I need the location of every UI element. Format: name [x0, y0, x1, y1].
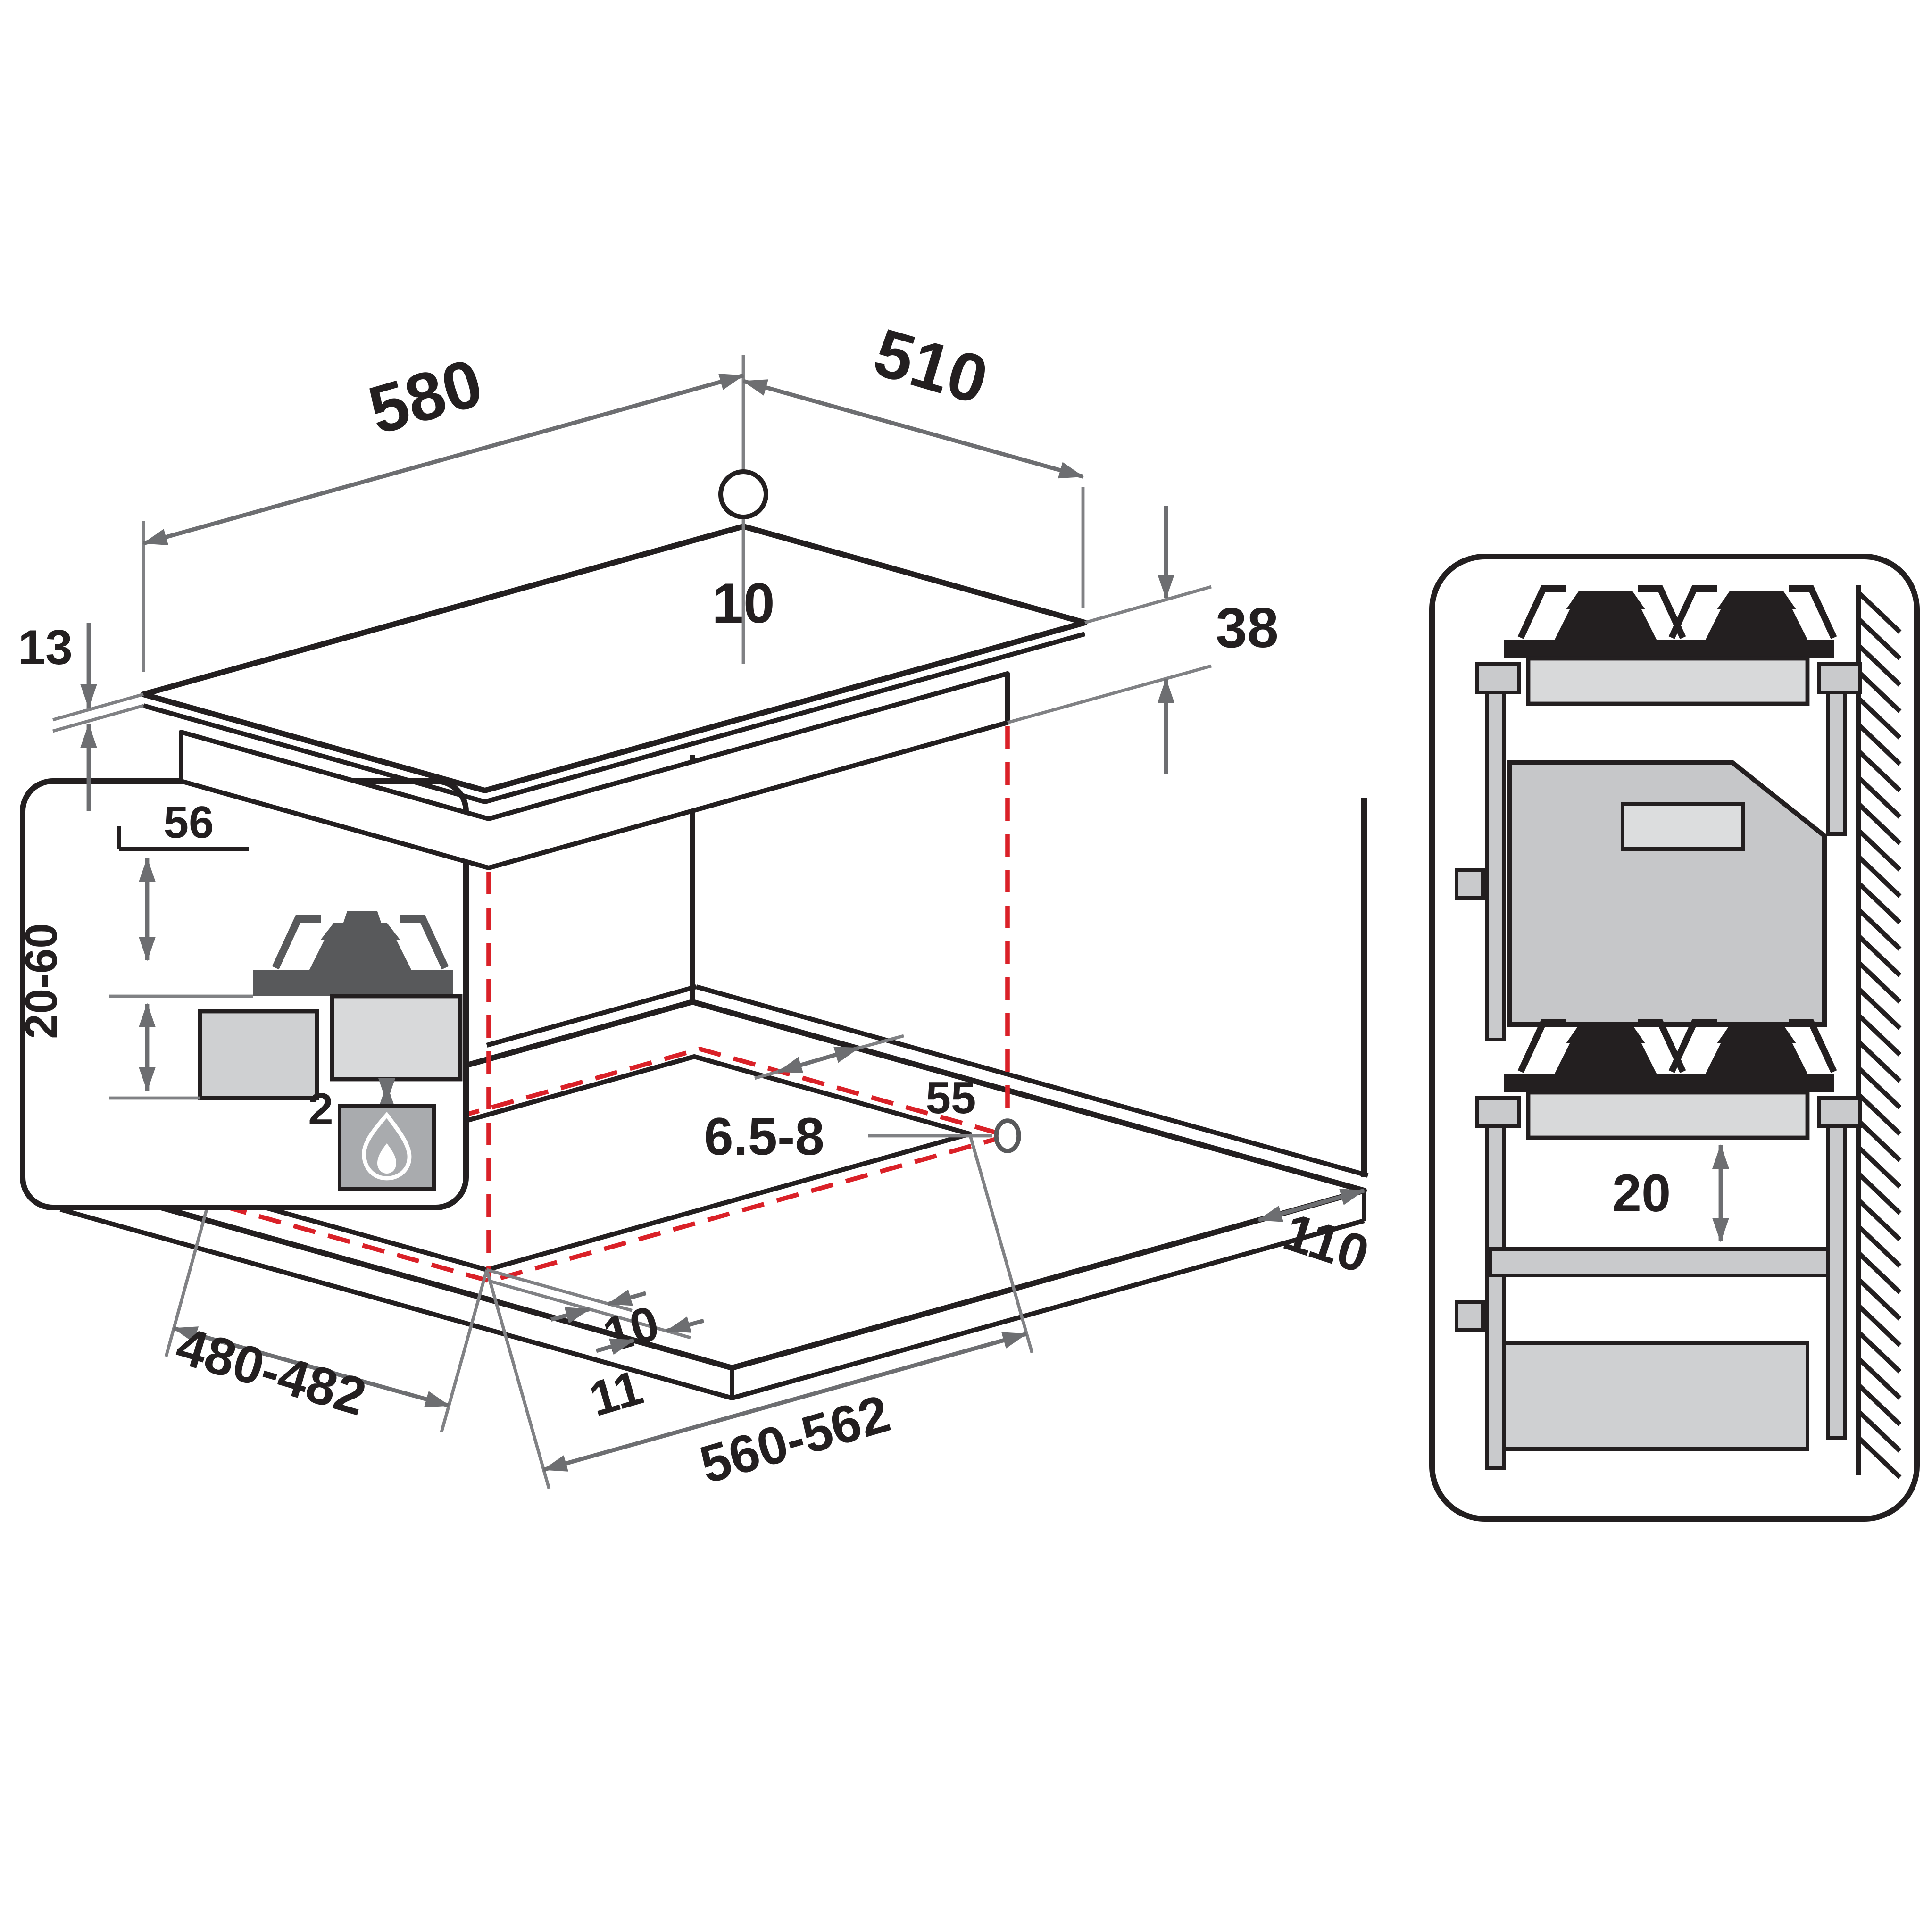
- worktop-right: [1819, 1098, 1860, 1126]
- gas-hole-circle: [721, 472, 766, 517]
- gas-inlet-stub: [1457, 1302, 1483, 1330]
- hob-chassis: [1528, 658, 1807, 704]
- section-view-oven: [1457, 589, 1860, 1040]
- burner-section-inset: 56 20-60 2: [16, 781, 466, 1207]
- dim-label-rear-clearance: 55: [926, 1073, 976, 1123]
- dim-label-fixing-hole: 6.5-8: [704, 1107, 824, 1166]
- hob-glass: [143, 526, 1085, 791]
- dim-label-cutout-depth: 480-482: [170, 1316, 373, 1426]
- dim-label-hole-diameter: 10: [712, 572, 774, 635]
- oven-block: [1509, 762, 1824, 1024]
- dim-label-side-clearance: 110: [1277, 1202, 1376, 1284]
- hob-installation-diagram: 55 6.5-8 480-482 560-562 10 11 110 56: [0, 0, 1932, 1932]
- cabinet-side-left: [1487, 1126, 1504, 1468]
- worktop-left: [1477, 1098, 1519, 1126]
- drawer-block: [1504, 1343, 1807, 1449]
- drawer-block: [200, 1011, 317, 1098]
- dim-label-bottom-gap: 2: [308, 1084, 333, 1134]
- dim-label-hob-depth: 510: [866, 314, 996, 419]
- hob-surface-bar: [253, 970, 453, 996]
- shelf: [1491, 1249, 1828, 1275]
- dim-label-worktop-range: 20-60: [16, 923, 67, 1039]
- dim-label-hob-width: 580: [360, 344, 491, 449]
- cabinet-side-left: [1487, 692, 1504, 1040]
- gas-inlet-stub: [1457, 870, 1483, 898]
- side-section-panel: 20: [1432, 557, 1917, 1519]
- hob-chassis: [1528, 1092, 1807, 1138]
- dim-label-burner-height: 56: [164, 797, 214, 848]
- fixing-hole-icon: [996, 1121, 1019, 1151]
- dim-label-glass-thickness: 13: [18, 620, 73, 675]
- worktop-left: [1477, 664, 1519, 692]
- dim-label-shelf-clearance: 20: [1612, 1164, 1671, 1223]
- cabinet-side-right: [1828, 692, 1845, 834]
- worktop-right: [1819, 664, 1860, 692]
- hob-body-block: [332, 996, 460, 1079]
- cabinet-side-right: [1828, 1126, 1845, 1438]
- oven-vent: [1623, 804, 1743, 849]
- dim-label-body-height: 38: [1216, 596, 1278, 659]
- hob-isometric-view: 10: [143, 355, 1085, 868]
